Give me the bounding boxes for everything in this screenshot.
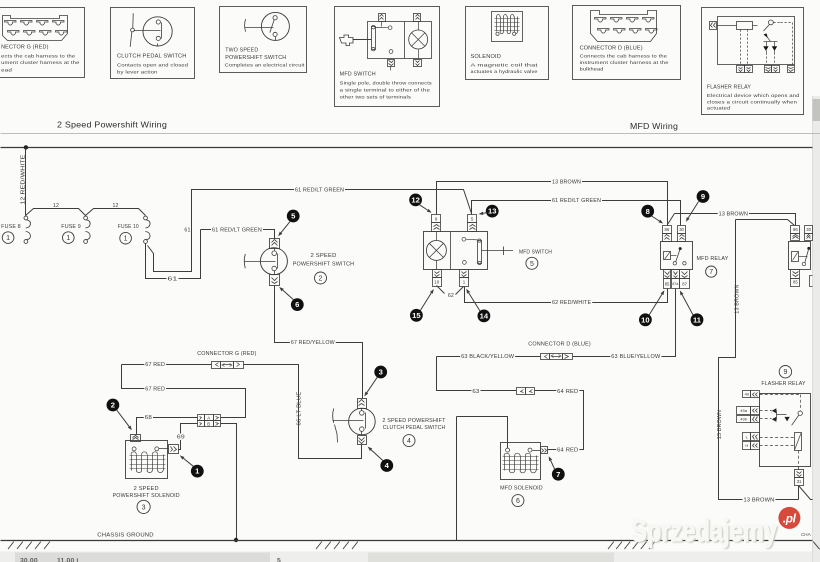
svg-text:CONNECTOR D (BLUE): CONNECTOR D (BLUE) — [580, 45, 643, 51]
svg-text:87a: 87a — [672, 282, 678, 286]
svg-text:61 RED/LT GREEN: 61 RED/LT GREEN — [552, 198, 601, 204]
svg-text:CHASSIS GROUND: CHASSIS GROUND — [97, 533, 154, 539]
svg-text:12: 12 — [53, 203, 59, 209]
svg-text:49b: 49b — [740, 416, 747, 421]
svg-text:62 RED/WHITE: 62 RED/WHITE — [552, 300, 592, 306]
svg-text:.pl: .pl — [783, 512, 797, 526]
svg-text:15: 15 — [412, 311, 421, 320]
svg-text:6: 6 — [295, 300, 299, 309]
svg-text:FUSE 10: FUSE 10 — [118, 224, 139, 230]
svg-text:61: 61 — [184, 228, 190, 234]
svg-text:6: 6 — [516, 498, 520, 505]
svg-text:ument cluster harness at t: ument cluster harness at the — [1, 60, 80, 66]
svg-text:2 SPEED POWERSHIFT: 2 SPEED POWERSHIFT — [382, 418, 446, 424]
svg-text:H: H — [745, 443, 748, 448]
svg-text:66 LT BLUE: 66 LT BLUE — [297, 391, 303, 426]
svg-text:actuated: actuated — [707, 106, 731, 112]
svg-text:30.00: 30.00 — [20, 558, 38, 562]
svg-text:Contacts open and closed: Contacts open and closed — [117, 62, 188, 68]
svg-text:63 BLACK/YELLOW: 63 BLACK/YELLOW — [461, 354, 514, 360]
svg-text:49a: 49a — [740, 408, 747, 413]
svg-text:8: 8 — [646, 207, 650, 216]
svg-text:1: 1 — [124, 236, 128, 243]
svg-text:85: 85 — [665, 281, 670, 286]
svg-text:CLUTCH PEDAL SWITCH: CLUTCH PEDAL SWITCH — [117, 54, 187, 60]
svg-text:9: 9 — [783, 369, 787, 376]
svg-text:13 BROWN: 13 BROWN — [552, 180, 581, 186]
svg-text:11: 11 — [693, 315, 702, 324]
svg-text:Connects the cab harness to th: Connects the cab harness to the — [580, 53, 668, 59]
svg-text:A: A — [207, 415, 210, 420]
svg-text:A magnetic coil that: A magnetic coil that — [471, 63, 539, 69]
svg-text:ects the cab harness to the: ects the cab harness to the — [1, 53, 75, 59]
svg-text:a single terminal to eithe: a single terminal to either of the — [340, 87, 430, 93]
svg-text:10: 10 — [641, 315, 649, 324]
svg-text:2: 2 — [319, 276, 323, 283]
svg-text:67 RED: 67 RED — [145, 387, 165, 393]
svg-text:other two sets of terminals: other two sets of terminals — [340, 95, 412, 101]
svg-text:1: 1 — [6, 235, 10, 242]
svg-text:13 BROWN: 13 BROWN — [744, 497, 775, 503]
svg-text:FUSE 9: FUSE 9 — [61, 224, 81, 230]
svg-text:68: 68 — [145, 415, 152, 421]
svg-text:10: 10 — [434, 279, 439, 284]
svg-text:FUSE 8: FUSE 8 — [1, 224, 21, 230]
svg-text:MFD SWITCH: MFD SWITCH — [519, 250, 552, 256]
svg-text:ead: ead — [1, 68, 12, 74]
svg-text:2 SPEED: 2 SPEED — [134, 486, 159, 492]
svg-text:3: 3 — [379, 368, 383, 377]
svg-text:MFD RELAY: MFD RELAY — [697, 256, 729, 262]
svg-text:SOLENOID: SOLENOID — [471, 54, 502, 60]
svg-text:2: 2 — [111, 401, 115, 410]
svg-text:67 RED/YELLOW: 67 RED/YELLOW — [291, 340, 335, 346]
svg-text:85: 85 — [793, 280, 798, 285]
svg-text:7: 7 — [709, 269, 713, 276]
svg-text:NECTOR G (RED): NECTOR G (RED) — [1, 45, 49, 51]
svg-text:30: 30 — [679, 227, 684, 232]
svg-text:12: 12 — [112, 203, 118, 209]
svg-text:13 BROWN: 13 BROWN — [719, 211, 749, 217]
svg-text:MFD Wiring: MFD Wiring — [630, 122, 678, 131]
svg-text:Single pole, double throw conn: Single pole, double throw connects — [340, 81, 433, 87]
svg-text:actuates a hydraulic valve: actuates a hydraulic valve — [471, 69, 538, 75]
svg-text:2 SPEED: 2 SPEED — [311, 253, 337, 259]
svg-text:61 RED/LT GREEN: 61 RED/LT GREEN — [295, 187, 344, 193]
svg-text:63: 63 — [472, 389, 479, 395]
svg-text:86: 86 — [793, 227, 798, 232]
svg-text:67 RED: 67 RED — [145, 362, 165, 368]
svg-text:13: 13 — [488, 207, 496, 216]
svg-text:MFD SWITCH: MFD SWITCH — [340, 71, 376, 77]
svg-text:POWERSHIFT SOLENOID: POWERSHIFT SOLENOID — [113, 493, 180, 499]
svg-text:4: 4 — [407, 438, 411, 445]
svg-text:62: 62 — [448, 293, 454, 299]
svg-text:61 RED/LT GREEN: 61 RED/LT GREEN — [212, 228, 262, 234]
svg-text:CHA: CHA — [801, 532, 812, 537]
svg-text:5: 5 — [277, 558, 281, 562]
svg-text:12 RED/WHITE: 12 RED/WHITE — [20, 154, 26, 205]
svg-text:CONNECTOR G (RED): CONNECTOR G (RED) — [197, 351, 256, 357]
svg-text:30: 30 — [806, 227, 811, 232]
svg-text:5: 5 — [530, 261, 534, 268]
svg-text:87: 87 — [682, 281, 687, 286]
svg-text:12: 12 — [411, 196, 419, 205]
svg-text:POWERSHIFT SWITCH: POWERSHIFT SWITCH — [293, 262, 355, 268]
svg-text:63 BLUE/YELLOW: 63 BLUE/YELLOW — [611, 354, 660, 360]
svg-text:bulkhead: bulkhead — [580, 67, 604, 73]
svg-text:64 RED: 64 RED — [557, 389, 578, 395]
svg-text:49: 49 — [745, 392, 750, 397]
svg-text:7: 7 — [556, 470, 560, 479]
svg-text:2 Speed Powershift Wiring: 2 Speed Powershift Wiring — [57, 121, 167, 130]
svg-text:FLASHER RELAY: FLASHER RELAY — [761, 381, 806, 387]
svg-text:69: 69 — [177, 435, 185, 441]
svg-text:11.00 i: 11.00 i — [57, 558, 78, 562]
svg-text:Sprzedajemy: Sprzedajemy — [631, 512, 777, 548]
svg-text:TWO SPEED: TWO SPEED — [225, 48, 258, 54]
svg-text:9: 9 — [701, 192, 705, 201]
svg-text:instrument cluster harness at: instrument cluster harness at the — [580, 60, 669, 66]
svg-text:31: 31 — [797, 479, 802, 484]
svg-text:B: B — [207, 421, 210, 426]
svg-text:by lever action: by lever action — [117, 69, 158, 75]
svg-text:POWERSHIFT SWITCH: POWERSHIFT SWITCH — [225, 55, 286, 61]
svg-text:CONNECTOR D (BLUE): CONNECTOR D (BLUE) — [528, 342, 591, 348]
svg-text:3: 3 — [142, 504, 146, 511]
svg-text:1: 1 — [66, 235, 70, 242]
svg-text:FLASHER RELAY: FLASHER RELAY — [707, 84, 751, 90]
svg-text:closes a circuit continuall: closes a circuit continually when — [707, 99, 797, 105]
svg-text:Completes an electrical circui: Completes an electrical circuit — [225, 62, 306, 68]
svg-text:64 RED: 64 RED — [557, 448, 578, 454]
svg-text:61: 61 — [168, 277, 178, 283]
svg-text:Electrical device which opens: Electrical device which opens and — [707, 93, 800, 99]
svg-text:13 BROWN: 13 BROWN — [717, 410, 723, 440]
svg-text:14: 14 — [480, 312, 489, 321]
svg-text:MFD SOLENOID: MFD SOLENOID — [500, 486, 543, 492]
svg-text:CLUTCH PEDAL SWITCH: CLUTCH PEDAL SWITCH — [383, 425, 446, 431]
svg-text:86: 86 — [665, 227, 670, 232]
svg-text:13 BROWN: 13 BROWN — [734, 284, 740, 314]
